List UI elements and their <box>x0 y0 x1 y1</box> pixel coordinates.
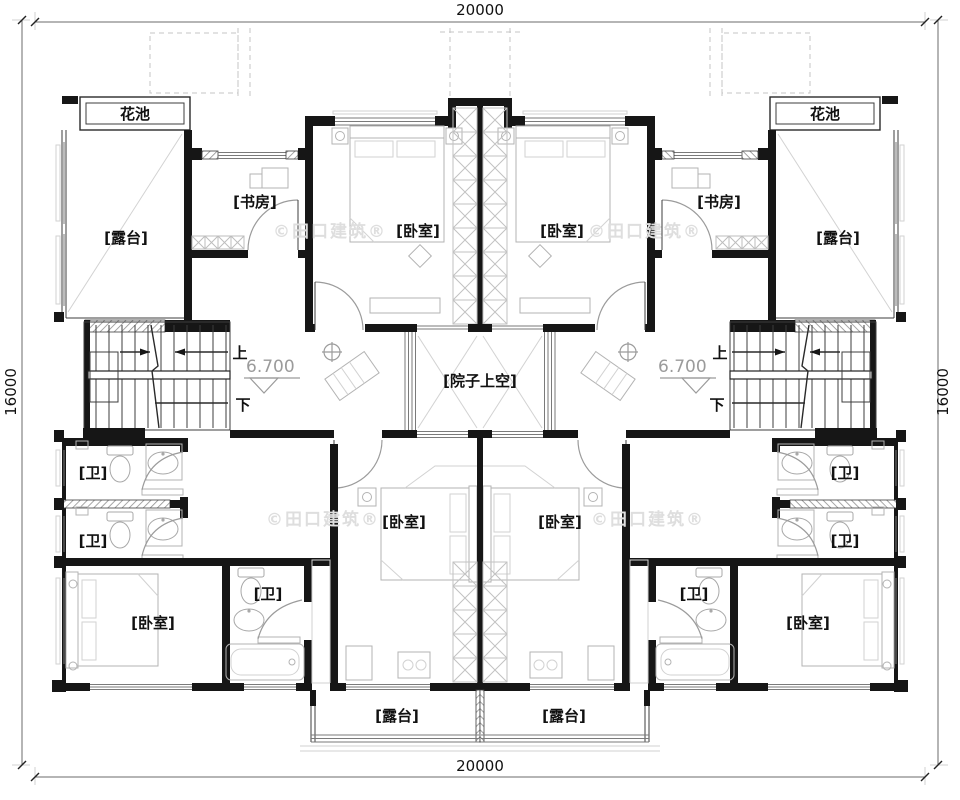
label-courtyard-void: [院子上空] <box>443 372 517 390</box>
watermark-top-right: ©田口建筑® <box>588 221 702 242</box>
label-bedroom-top-left: [卧室] <box>396 222 440 240</box>
terrace-top <box>54 130 192 322</box>
label-bath-right-lower: [卫] <box>831 532 860 550</box>
label-bedroom-center-right: [卧室] <box>538 513 582 531</box>
bedroom-bottom-left <box>52 558 338 692</box>
floor-plan-page: 20000 20000 16000 16000 6.700 6.700 花池 花… <box>0 0 960 800</box>
label-bedroom-top-right: [卧室] <box>540 222 584 240</box>
dimension-bottom: 20000 <box>456 757 504 775</box>
elevation-right: 6.700 <box>658 357 707 377</box>
bedroom-top-furniture <box>332 126 462 313</box>
dimension-right: 16000 <box>934 368 952 416</box>
label-study-left: [书房] <box>233 193 277 211</box>
label-bedroom-bottom-right: [卧室] <box>786 614 830 632</box>
label-stairs-up-left: 上 <box>232 344 247 362</box>
label-bath-left-lower: [卫] <box>79 532 108 550</box>
label-study-right: [书房] <box>697 193 741 211</box>
middle-band-walls <box>230 430 405 488</box>
deck-and-column-symbols <box>322 342 379 400</box>
unit-half-geometry <box>52 28 480 751</box>
label-bath-inner-left: [卫] <box>254 585 283 603</box>
watermark-top-left: ©田口建筑® <box>273 221 387 242</box>
elevation-left: 6.700 <box>246 357 295 377</box>
label-bath-left-upper: [卫] <box>79 464 108 482</box>
watermark-bottom-right: ©田口建筑® <box>591 509 705 530</box>
label-stairs-down-left: 下 <box>235 396 250 414</box>
label-terrace-bottom-left: [露台] <box>375 707 419 725</box>
label-bath-right-upper: [卫] <box>831 464 860 482</box>
dimension-left: 16000 <box>2 368 20 416</box>
staircase <box>83 320 230 438</box>
label-bedroom-center-left: [卧室] <box>382 513 426 531</box>
center-strip-bottom <box>453 438 480 742</box>
label-flower-bed-left: 花池 <box>120 105 150 123</box>
roof-projection-lines <box>150 28 480 98</box>
label-terrace-bottom-right: [露台] <box>542 707 586 725</box>
label-terrace-top-right: [露台] <box>816 229 860 247</box>
bathrooms-left <box>54 430 188 568</box>
label-stairs-up-right: 上 <box>712 344 727 362</box>
label-bedroom-bottom-left: [卧室] <box>131 614 175 632</box>
label-flower-bed-right: 花池 <box>810 105 840 123</box>
label-bath-inner-right: [卫] <box>680 585 709 603</box>
label-terrace-top-left: [露台] <box>104 229 148 247</box>
unit-half-mirrored <box>480 28 908 751</box>
watermark-bottom-left: ©田口建筑® <box>266 509 380 530</box>
floor-plan-canvas: 20000 20000 16000 16000 6.700 6.700 花池 花… <box>0 0 960 800</box>
label-stairs-down-right: 下 <box>709 396 724 414</box>
dimension-top: 20000 <box>456 1 504 19</box>
bedroom-bottom-center <box>312 444 480 691</box>
